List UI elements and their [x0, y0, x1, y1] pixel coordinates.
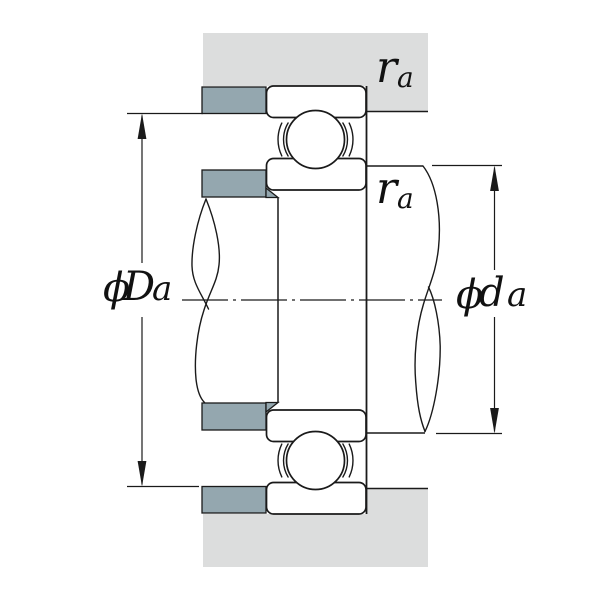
housing-shoulder-block-bottom — [202, 487, 266, 514]
arrowhead-up — [138, 114, 147, 140]
label-r-sub: a — [397, 61, 414, 94]
raceway-arc — [349, 444, 353, 477]
label-a: a — [152, 269, 172, 309]
bearing-mounting-diagram: ϕ D a ϕ d a r a r a — [0, 0, 600, 600]
housing-shoulder-block-top — [202, 87, 266, 114]
break-curve-right-short — [425, 287, 440, 432]
shaft-shoulder-block-top — [202, 170, 266, 197]
raceway-arc — [278, 444, 282, 477]
label-a: a — [507, 275, 527, 315]
diagram-canvas: ϕ D a ϕ d a r a r a — [0, 0, 600, 600]
label-r-sub: a — [397, 182, 414, 215]
shaft-shoulder-block-bottom — [202, 403, 266, 430]
ball-top — [287, 111, 345, 169]
label-ra-shaft: r a — [376, 163, 414, 215]
ball-bottom — [287, 432, 345, 490]
label-D: D — [122, 264, 155, 310]
arrowhead-up — [490, 166, 499, 192]
arrowhead-down — [138, 461, 147, 487]
break-curve-left-short — [192, 199, 209, 309]
bearing-section-top — [267, 86, 367, 190]
raceway-arc — [349, 123, 353, 156]
raceway-arc — [278, 123, 282, 156]
label-d: d — [479, 270, 505, 316]
bearing-section-bottom — [267, 410, 367, 514]
dimension-da: ϕ d a — [432, 166, 527, 434]
arrowhead-down — [490, 408, 499, 434]
break-curve-left-long — [195, 199, 219, 403]
